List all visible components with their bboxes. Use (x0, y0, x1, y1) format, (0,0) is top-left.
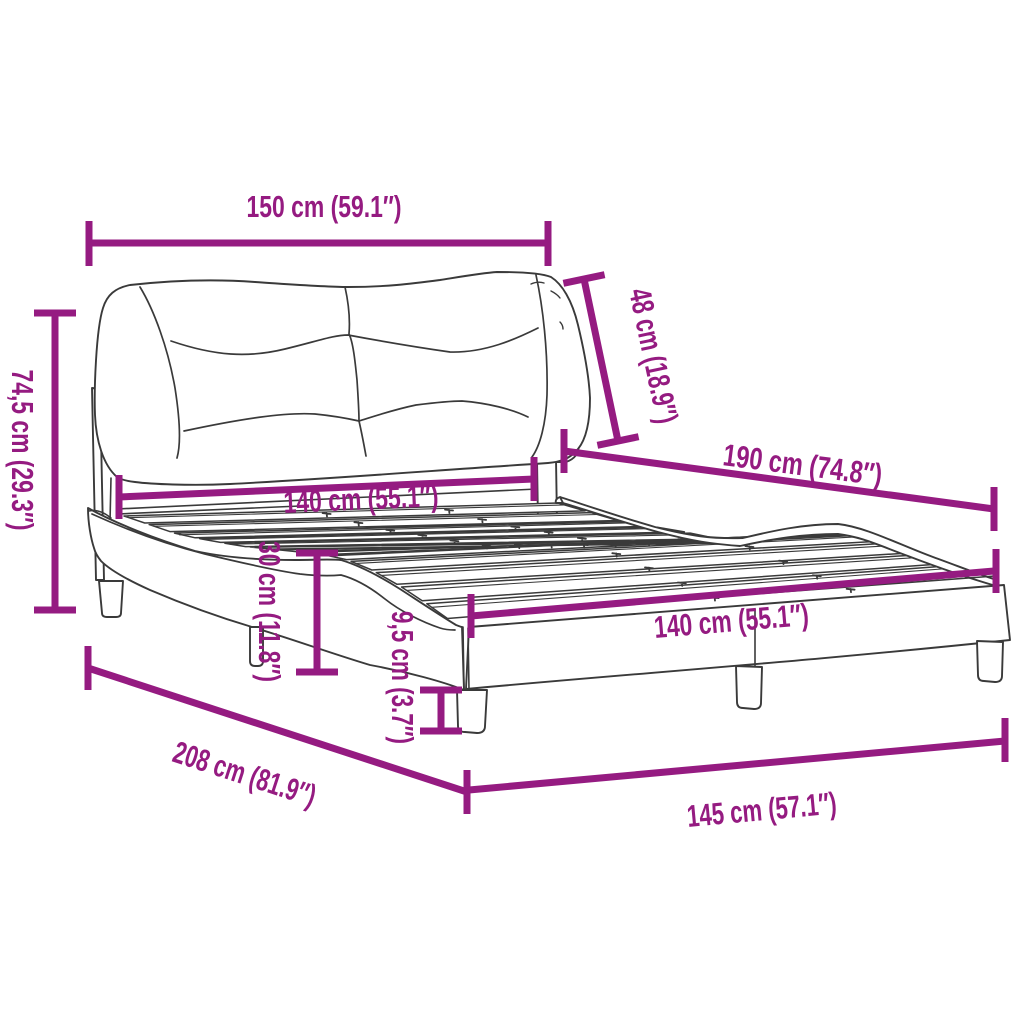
svg-text:140 cm (55.1″): 140 cm (55.1″) (283, 478, 439, 520)
svg-text:9,5 cm (3.7″): 9,5 cm (3.7″) (385, 611, 420, 744)
svg-text:30 cm (11.8″): 30 cm (11.8″) (252, 541, 287, 682)
svg-text:74,5 cm (29.3″): 74,5 cm (29.3″) (5, 370, 40, 531)
svg-text:150 cm (59.1″): 150 cm (59.1″) (247, 189, 402, 224)
